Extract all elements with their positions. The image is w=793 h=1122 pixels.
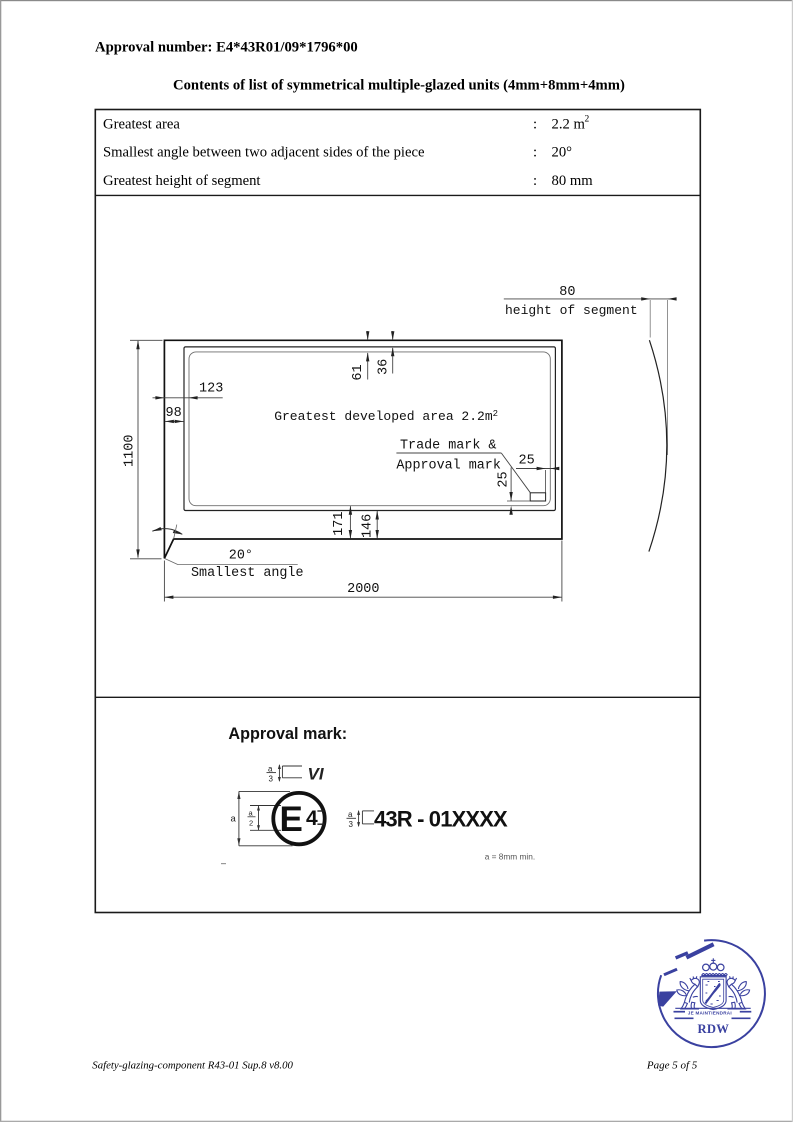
svg-text:61: 61 [351,364,366,380]
svg-text:a: a [249,809,254,818]
svg-text:Page 5 of 5: Page 5 of 5 [646,1060,698,1072]
svg-text:20°: 20° [229,549,253,564]
svg-text:Greatest developed area 2.2m2: Greatest developed area 2.2m2 [274,409,498,424]
svg-text:3: 3 [269,775,274,784]
svg-text:Approval number: E4*43R01/09*1: Approval number: E4*43R01/09*1796*00 [95,40,358,56]
svg-text:Greatest height of segment: Greatest height of segment [103,173,261,189]
svg-text::: : [533,117,537,133]
svg-text:80: 80 [559,285,575,300]
svg-text:123: 123 [199,382,223,397]
svg-text:Approval mark:: Approval mark: [228,725,347,743]
svg-text:a: a [231,814,237,825]
svg-text:171: 171 [332,512,347,536]
svg-text:Smallest angle between two adj: Smallest angle between two adjacent side… [103,145,425,161]
svg-text:Greatest area: Greatest area [103,117,180,133]
svg-text:36: 36 [377,359,392,375]
svg-text:2: 2 [249,819,253,828]
svg-text:Smallest angle: Smallest angle [191,566,304,581]
svg-text:VI: VI [308,765,325,784]
svg-text:25: 25 [519,454,535,469]
svg-text:RDW: RDW [698,1022,730,1036]
svg-text:3: 3 [349,820,354,829]
svg-text:98: 98 [166,406,182,421]
svg-text:Safety-glazing-component R43-0: Safety-glazing-component R43-01 Sup.8 v8… [92,1060,293,1072]
svg-text:height of segment: height of segment [505,303,638,318]
svg-text:1100: 1100 [123,435,138,467]
svg-text:Trade mark &: Trade mark & [400,439,496,454]
svg-text:E: E [280,800,303,839]
svg-text:2.2 m: 2.2 m [552,117,586,133]
svg-text:a: a [348,810,353,819]
svg-text::: : [533,173,537,189]
svg-text:a: a [268,765,273,774]
svg-text:80 mm: 80 mm [552,173,594,189]
svg-text:2000: 2000 [347,582,379,597]
svg-text:Approval mark: Approval mark [396,459,500,474]
svg-text:20°: 20° [552,145,573,161]
svg-text:JE MAINTIENDRAI: JE MAINTIENDRAI [688,1010,732,1015]
svg-text:25: 25 [497,471,512,487]
svg-text:4: 4 [306,807,318,830]
svg-text:Contents of list of symmetrica: Contents of list of symmetrical multiple… [173,78,625,94]
svg-text:2: 2 [585,115,590,125]
svg-text:a = 8mm min.: a = 8mm min. [485,852,536,862]
svg-text:43R - 01XXXX: 43R - 01XXXX [374,807,508,832]
svg-text:146: 146 [361,514,376,538]
svg-text::: : [533,145,537,161]
